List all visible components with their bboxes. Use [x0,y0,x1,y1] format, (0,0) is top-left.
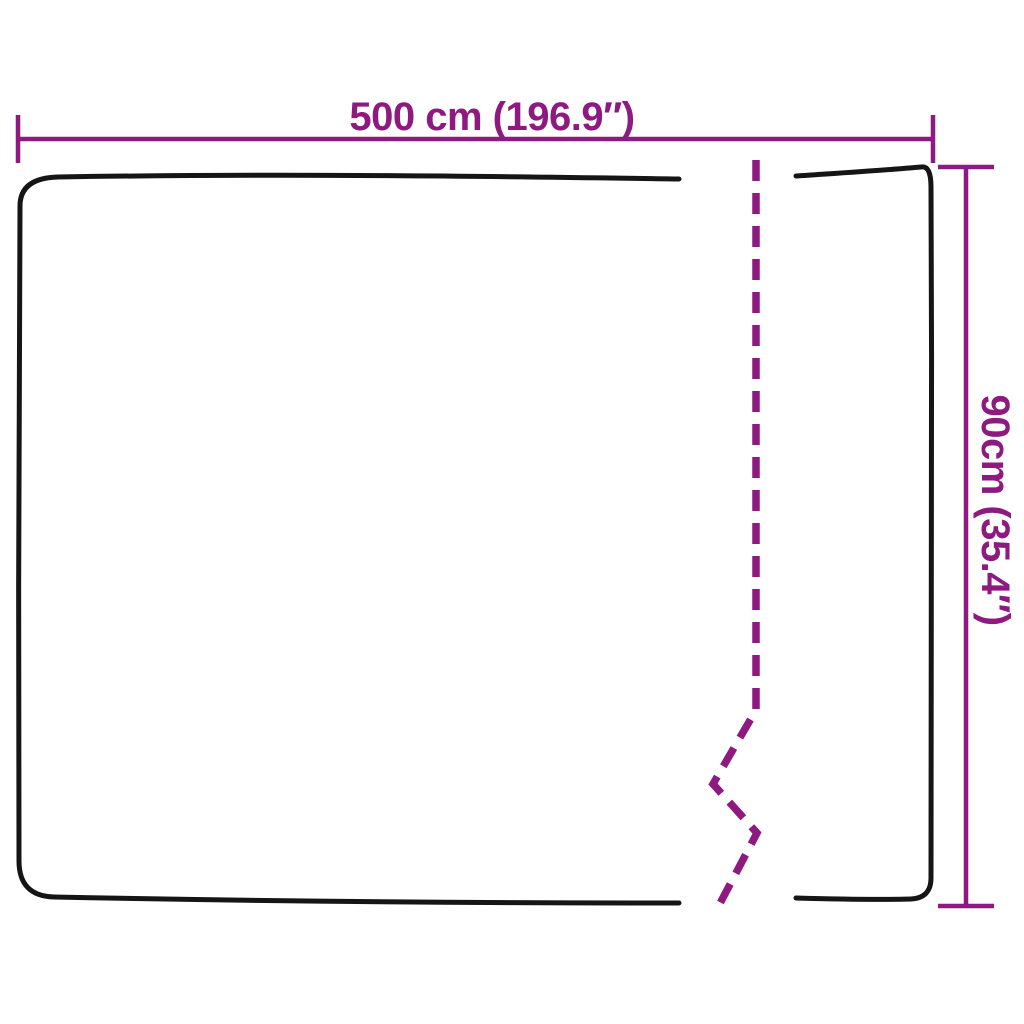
product-outline [19,167,932,903]
height-dimension-label: 90cm (35.4″) [973,394,1017,625]
length-break-line [713,160,757,911]
width-dimension-label: 500 cm (196.9″) [349,95,634,139]
product-dimension-diagram: 500 cm (196.9″) 90cm (35.4″) [0,0,1024,1024]
dimension-diagram-canvas: 500 cm (196.9″) 90cm (35.4″) [0,0,1024,1024]
product-outline-left-section [19,175,679,903]
product-outline-right-section [796,167,932,900]
